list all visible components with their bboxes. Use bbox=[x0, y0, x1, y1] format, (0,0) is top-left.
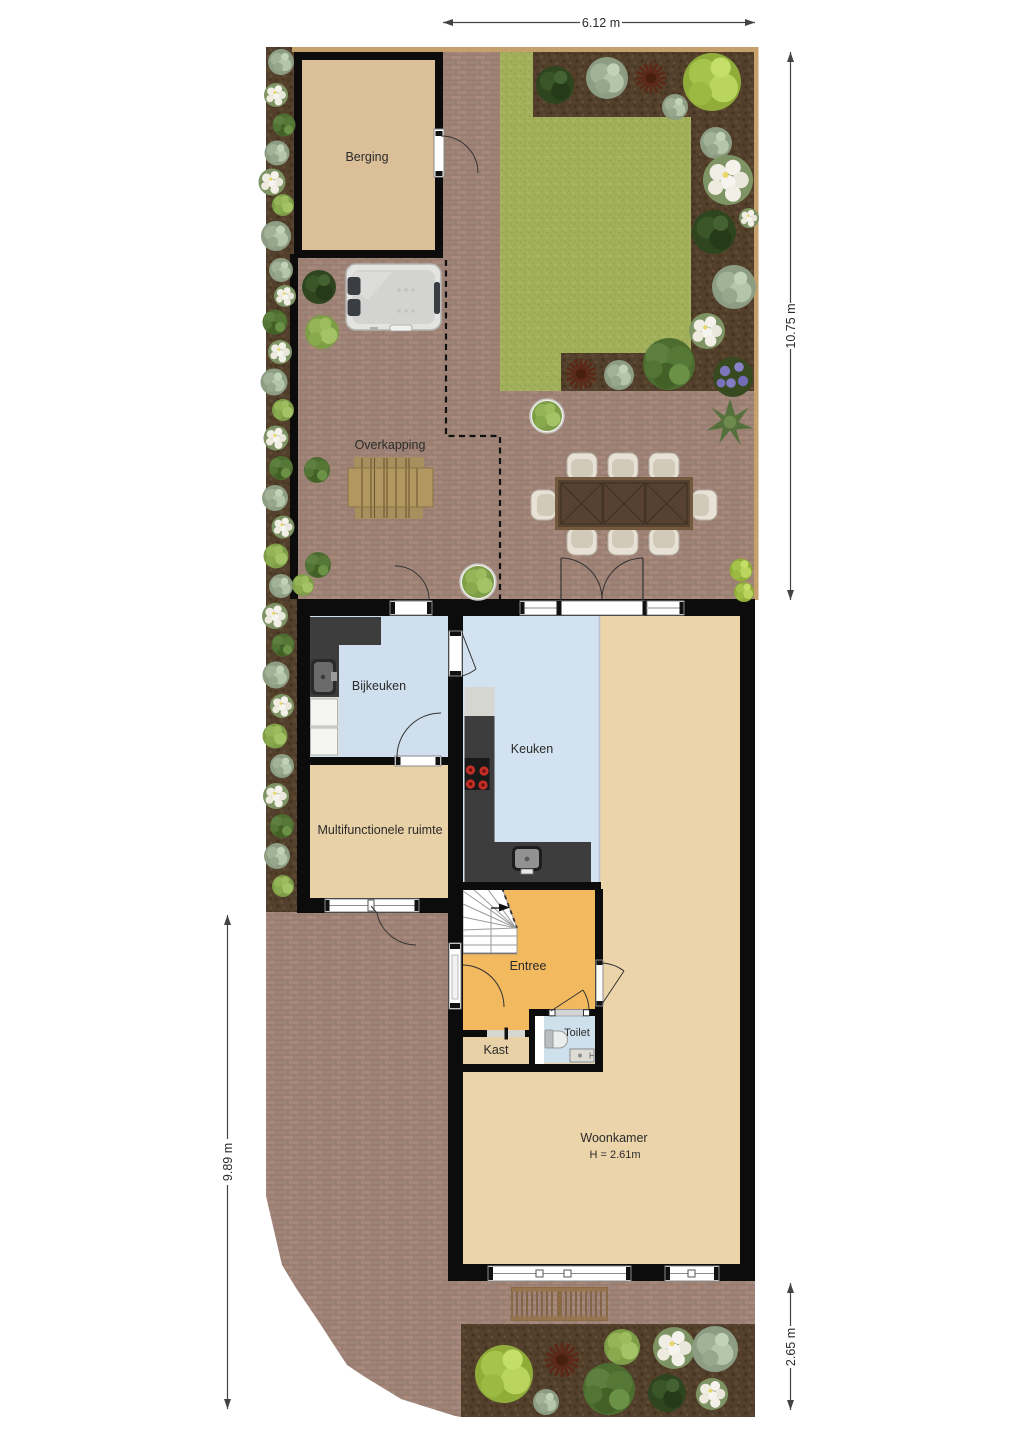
svg-text:6.12 m: 6.12 m bbox=[582, 16, 620, 30]
svg-text:Multifunctionele ruimte: Multifunctionele ruimte bbox=[317, 823, 442, 837]
svg-text:Woonkamer: Woonkamer bbox=[580, 1131, 647, 1145]
svg-text:Entree: Entree bbox=[510, 959, 547, 973]
svg-text:Kast: Kast bbox=[483, 1043, 509, 1057]
svg-text:9.89 m: 9.89 m bbox=[221, 1143, 235, 1181]
svg-text:Toilet: Toilet bbox=[564, 1027, 590, 1039]
svg-text:Bijkeuken: Bijkeuken bbox=[352, 679, 406, 693]
svg-text:2.65 m: 2.65 m bbox=[784, 1328, 798, 1366]
svg-text:Berging: Berging bbox=[345, 150, 388, 164]
svg-text:Overkapping: Overkapping bbox=[355, 438, 426, 452]
svg-text:10.75 m: 10.75 m bbox=[784, 303, 798, 348]
svg-text:Keuken: Keuken bbox=[511, 742, 553, 756]
svg-text:H = 2.61m: H = 2.61m bbox=[589, 1149, 640, 1161]
